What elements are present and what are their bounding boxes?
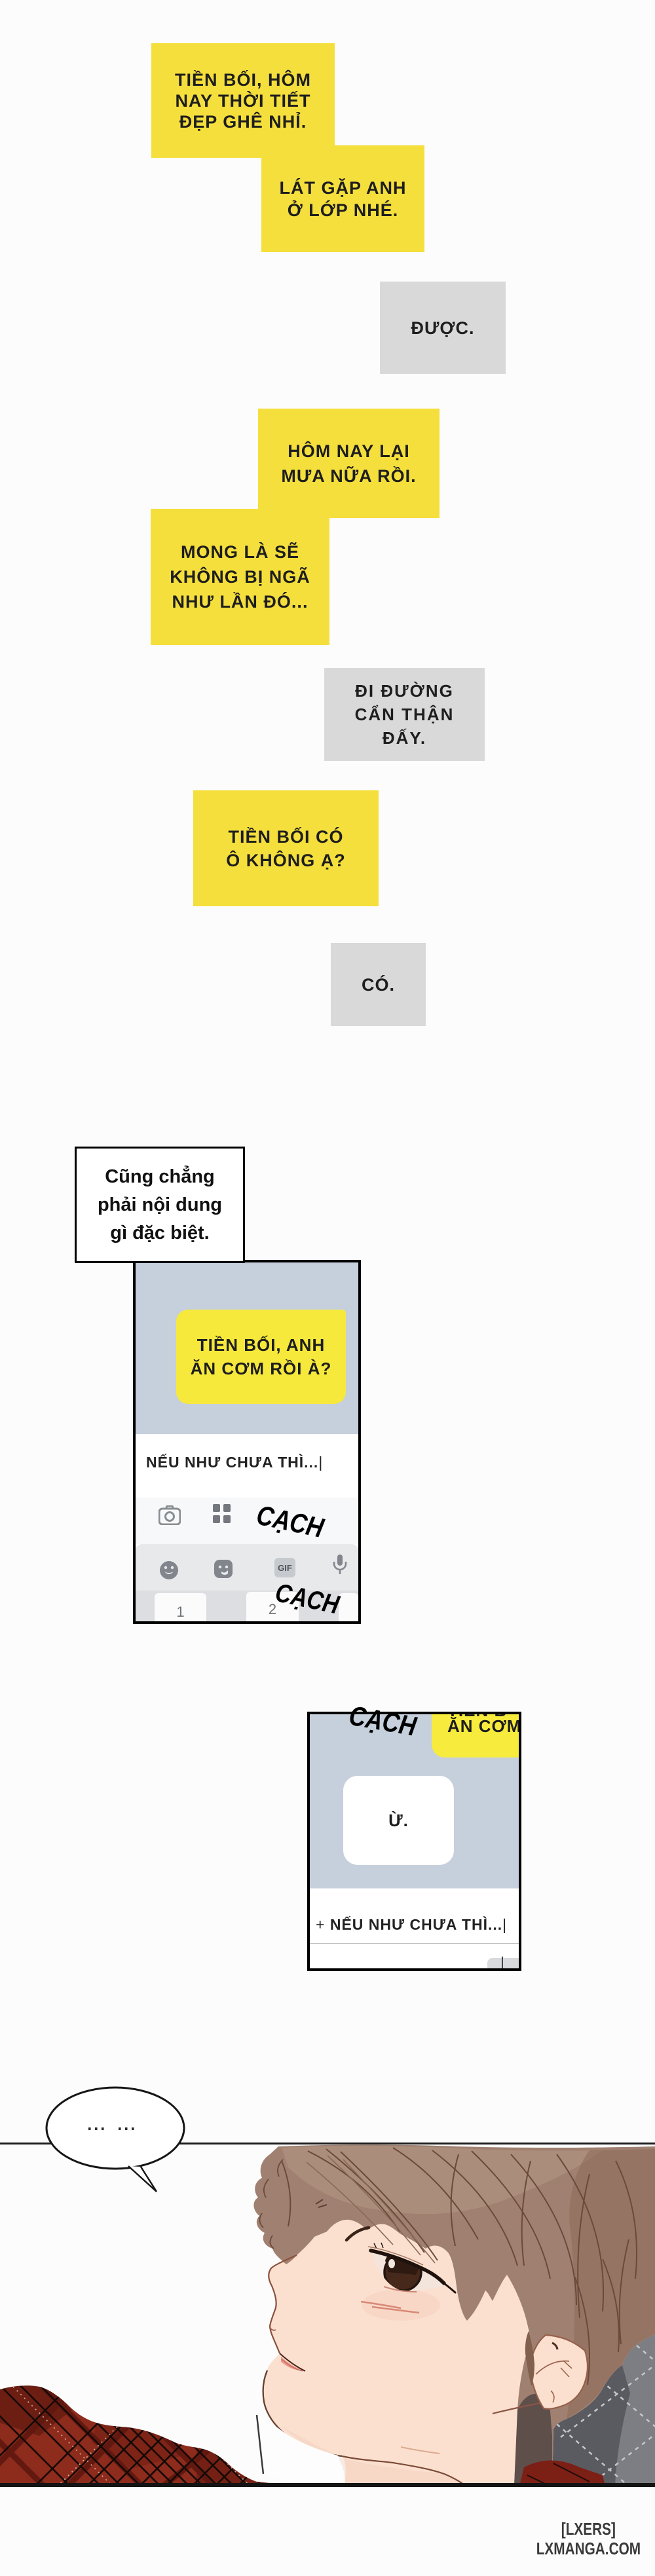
svg-text:[LXERS]: [LXERS] bbox=[561, 2520, 616, 2539]
svg-text:LXMANGA.COM: LXMANGA.COM bbox=[536, 2539, 641, 2558]
